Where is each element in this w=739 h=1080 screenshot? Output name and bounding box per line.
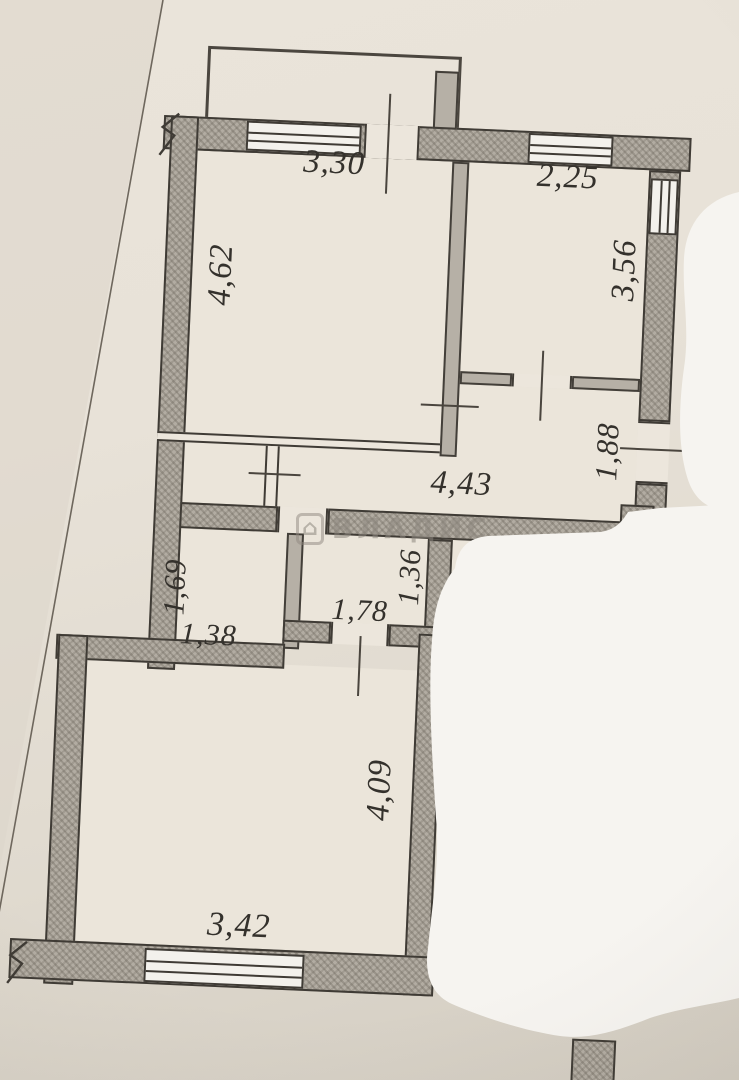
white-patch-top-right <box>680 192 739 512</box>
white-patches <box>0 0 739 1080</box>
floorplan-photo: 3,302,254,623,561,884,431,691,381,781,36… <box>0 0 739 1080</box>
white-patch-large <box>427 504 739 1037</box>
